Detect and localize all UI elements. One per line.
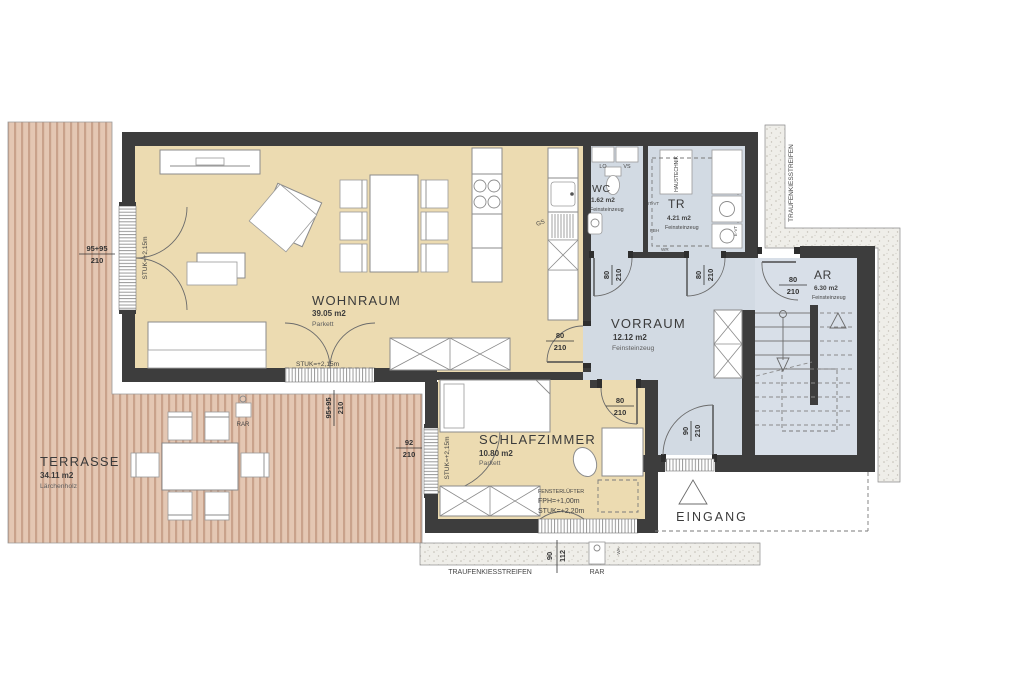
rainpipe-bottom-icon [589,542,605,564]
room-floor-tr: Feinsteinzeug [665,225,699,231]
terrace-table [162,443,238,490]
room-floor-vorraum: Feinsteinzeug [612,345,655,352]
itvt-label: IT-VT [648,201,659,206]
bed [440,380,550,432]
sink-icon [551,182,575,206]
stuk-label-west: STUK=+2,15m [142,237,149,280]
floor-plan: WOHNRAUM 39.05 m2 Parkett SCHLAFZIMMER 1… [0,0,1024,683]
entrance-label: EINGANG [676,510,748,524]
room-area-ar: 6.30 m2 [814,285,838,292]
room-floor-terrasse: Lärchenholz [40,483,78,490]
sideboard-crossed [390,338,510,370]
room-label-schlafzimmer: SCHLAFZIMMER [479,432,596,447]
rar-label-bottom: RAR [590,569,605,576]
room-floor-wc: Feinsteinzeug [590,207,624,213]
vs-label: VS [623,164,631,170]
svg-text:80: 80 [789,275,797,284]
stuk220-label: STUK=+2,20m [538,508,584,515]
svg-text:80: 80 [616,396,624,405]
haustechnik-label: HAUSTECHNIK [674,155,680,192]
room-area-vorraum: 12.12 m2 [613,333,647,342]
svg-text:95+95: 95+95 [86,244,107,253]
room-label-wohnraum: WOHNRAUM [312,293,401,308]
stuk-label-bedroom: STUK=+2,15m [444,437,451,480]
evt-label: E-VT [733,226,738,237]
vorraum-closet-crossed [714,310,742,378]
svg-text:210: 210 [693,425,702,438]
room-area-terrasse: 34.11 m2 [40,471,74,480]
rar-label-terrace: RAR [237,422,250,428]
stuk-label-south: STUK=+2,15m [296,361,339,368]
entrance-arrow-icon [679,480,707,504]
svg-text:95+95: 95+95 [324,397,333,418]
wa-label: WA [616,546,621,554]
room-area-tr: 4.21 m2 [667,215,691,222]
tv-sideboard [160,150,260,174]
wr-label: WR [661,247,669,252]
svg-text:210: 210 [336,402,345,415]
svg-text:80: 80 [602,271,611,279]
svg-text:112: 112 [558,550,567,562]
wardrobe-crossed [440,486,540,516]
room-floor-ar: Feinsteinzeug [812,295,846,301]
room-area-schlafzimmer: 10.80 m2 [479,449,513,458]
svg-text:210: 210 [706,269,715,282]
room-area-wohnraum: 39.05 m2 [312,309,346,318]
svg-text:210: 210 [554,343,567,352]
room-label-tr: TR [668,197,685,211]
sofa [148,322,266,368]
svg-text:210: 210 [403,450,416,459]
room-floor-wohnraum: Parkett [312,321,334,328]
fph-label: FPH=+1,00m [538,498,580,505]
fridge-icon [548,240,578,270]
dining-table [370,175,418,272]
floor-plan-canvas: WOHNRAUM 39.05 m2 Parkett SCHLAFZIMMER 1… [0,0,1024,683]
svg-text:80: 80 [694,271,703,279]
room-label-vorraum: VORRAUM [611,316,686,331]
svg-text:90: 90 [681,427,690,435]
svg-text:92: 92 [405,438,413,447]
room-label-ar: AR [814,268,832,282]
svg-text:80: 80 [556,331,564,340]
lo-label: LO [599,164,606,170]
washbasin-icon [588,213,602,234]
room-area-wc: 1.62 m2 [591,197,615,204]
fbh-label: FBH [650,228,659,233]
tr-cabinet [712,150,742,194]
traufenkies-label-right: TRAUFENKIESSTREIFEN [788,144,795,222]
svg-text:210: 210 [787,287,800,296]
fensterluefter-label: FENSTERLÜFTER [538,488,584,495]
room-floor-schlafzimmer: Parkett [479,460,501,467]
kitchen-island [472,148,502,282]
svg-text:90: 90 [545,552,554,560]
traufenkies-label-bottom: TRAUFENKIESSTREIFEN [448,569,532,576]
kitchen-counter [548,148,578,320]
room-label-terrasse: TERRASSE [40,454,120,469]
svg-text:210: 210 [614,408,627,417]
room-label-wc: WC [592,183,611,195]
svg-text:210: 210 [614,269,623,282]
washer-icon [712,196,742,222]
svg-text:210: 210 [91,256,104,265]
